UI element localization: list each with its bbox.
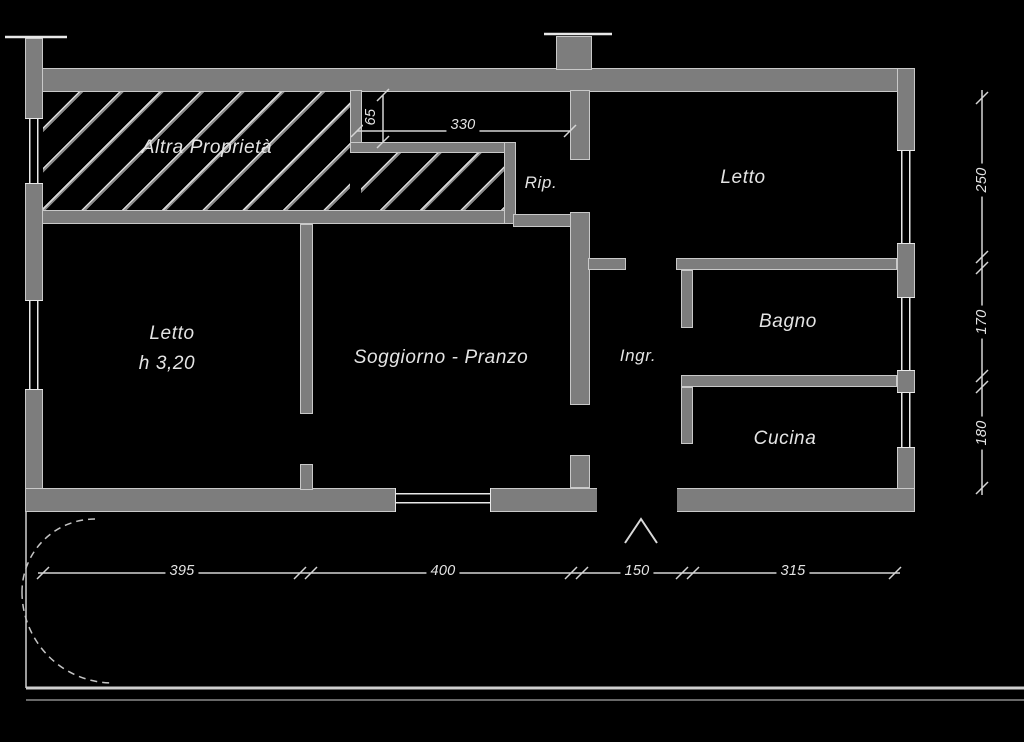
hatch-area-extension [361,153,504,212]
wall-bagno-ingresso [681,270,693,328]
room-label-letto-right: Letto [720,167,765,189]
wall-rip-bottom [513,214,571,227]
dim-bottom-400: 400 [426,563,459,579]
room-label-ripostiglio: Rip. [525,173,558,193]
window-soggiorno [395,488,491,512]
exterior-wall-top [42,68,915,92]
entrance-opening [597,488,677,512]
window-cucina [897,392,915,448]
gate-swing-arcs [22,519,113,683]
wall-ingresso-left [570,212,590,405]
property-boundary [26,512,1024,700]
window-bagno [897,297,915,371]
party-wall-stub-top [556,36,592,70]
dim-right-250: 250 [974,163,990,196]
wall-letto-bottom-left [588,258,626,270]
wall-hatch-step-horizontal [350,142,516,153]
room-label-soggiorno: Soggiorno - Pranzo [354,347,529,369]
window-left-upper [25,118,43,184]
wall-letto-soggiorno [300,224,313,414]
room-label-ingresso: Ingr. [620,346,656,366]
room-label-cucina: Cucina [754,428,817,450]
dim-inner-330: 330 [446,117,479,133]
wall-cucina-ingresso [681,387,693,444]
dim-right-180: 180 [974,416,990,449]
room-label-altra-proprieta: Altra Proprietà [142,137,272,159]
wall-rip-right [570,90,590,160]
room-label-letto-left: Letto [149,323,194,345]
dim-bottom-150: 150 [620,563,653,579]
room-label-bagno: Bagno [759,311,817,333]
window-left-lower [25,300,43,390]
wall-letto-soggiorno-stub [300,464,313,490]
exterior-wall-left [25,38,43,512]
window-letto-right [897,150,915,244]
dim-right-170: 170 [974,305,990,338]
wall-hatch-bottom [42,210,516,224]
floor-plan: Altra Proprietà Letto h 3,20 Soggiorno -… [0,0,1024,742]
dim-step-65: 65 [363,105,379,130]
wall-letto-bagno [676,258,897,270]
wall-bagno-cucina [681,375,897,387]
dim-bottom-395: 395 [165,563,198,579]
room-label-letto-left-height: h 3,20 [139,353,195,375]
entrance-arrow [625,519,657,543]
dim-bottom-315: 315 [776,563,809,579]
wall-cap-lines [5,34,612,37]
wall-ingresso-left-stub [570,455,590,488]
wall-hatch-right [504,142,516,224]
